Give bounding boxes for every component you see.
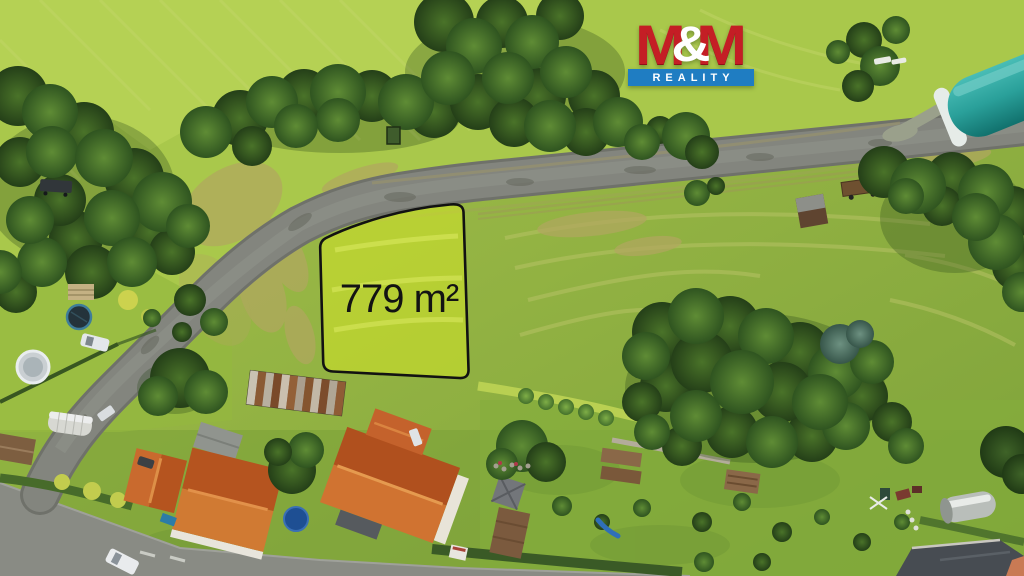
green-container (387, 127, 400, 144)
mm-reality-logo: M & M REALITY (628, 23, 754, 86)
logo-mm-wordmark: M & M (623, 23, 759, 67)
plot-area-label: 779 m² (331, 277, 467, 321)
aerial-photo (0, 0, 1024, 576)
logo-ampersand-icon: & (672, 15, 711, 73)
listing-photo: 779 m² M & M REALITY (0, 0, 1024, 576)
pallets (68, 284, 94, 300)
round-pool (17, 351, 49, 383)
trampoline (67, 305, 91, 329)
blue-pool (284, 507, 308, 531)
roadside-shed (795, 194, 828, 228)
